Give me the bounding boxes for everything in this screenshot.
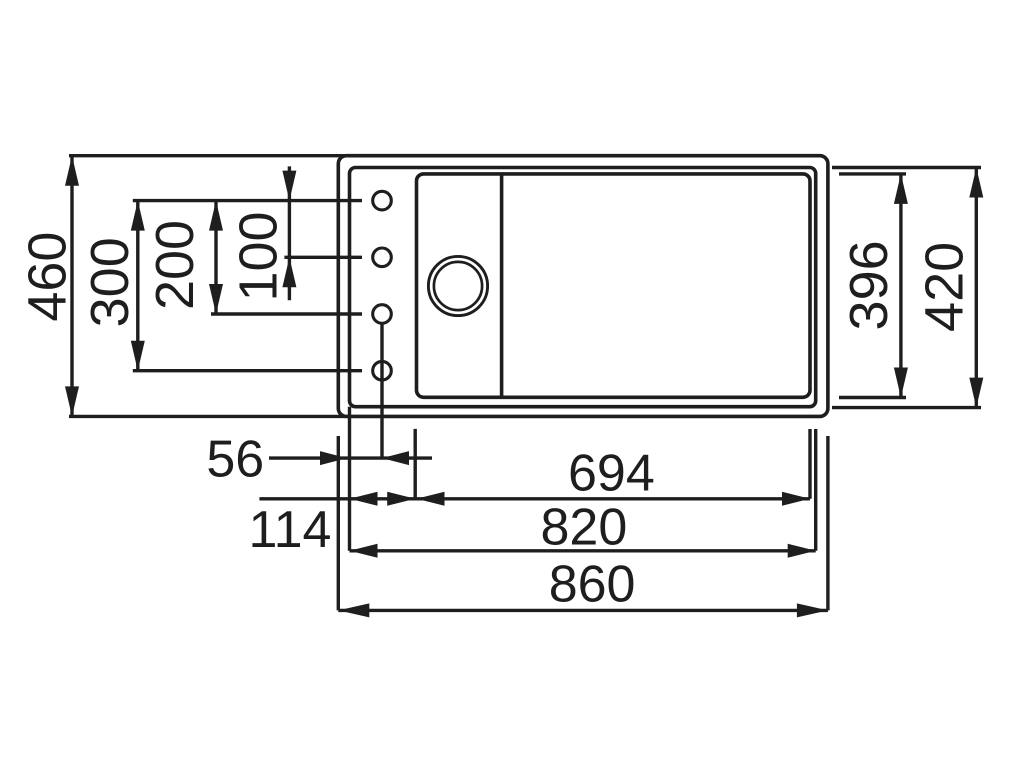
svg-text:56: 56 (206, 431, 264, 489)
svg-text:300: 300 (80, 237, 140, 327)
svg-text:396: 396 (839, 240, 899, 330)
svg-text:460: 460 (17, 232, 77, 322)
svg-text:694: 694 (568, 444, 655, 502)
svg-text:860: 860 (549, 556, 636, 614)
svg-text:100: 100 (229, 211, 289, 301)
svg-text:420: 420 (915, 242, 975, 332)
svg-text:114: 114 (249, 501, 332, 559)
svg-text:820: 820 (541, 498, 628, 556)
svg-text:200: 200 (145, 220, 205, 310)
